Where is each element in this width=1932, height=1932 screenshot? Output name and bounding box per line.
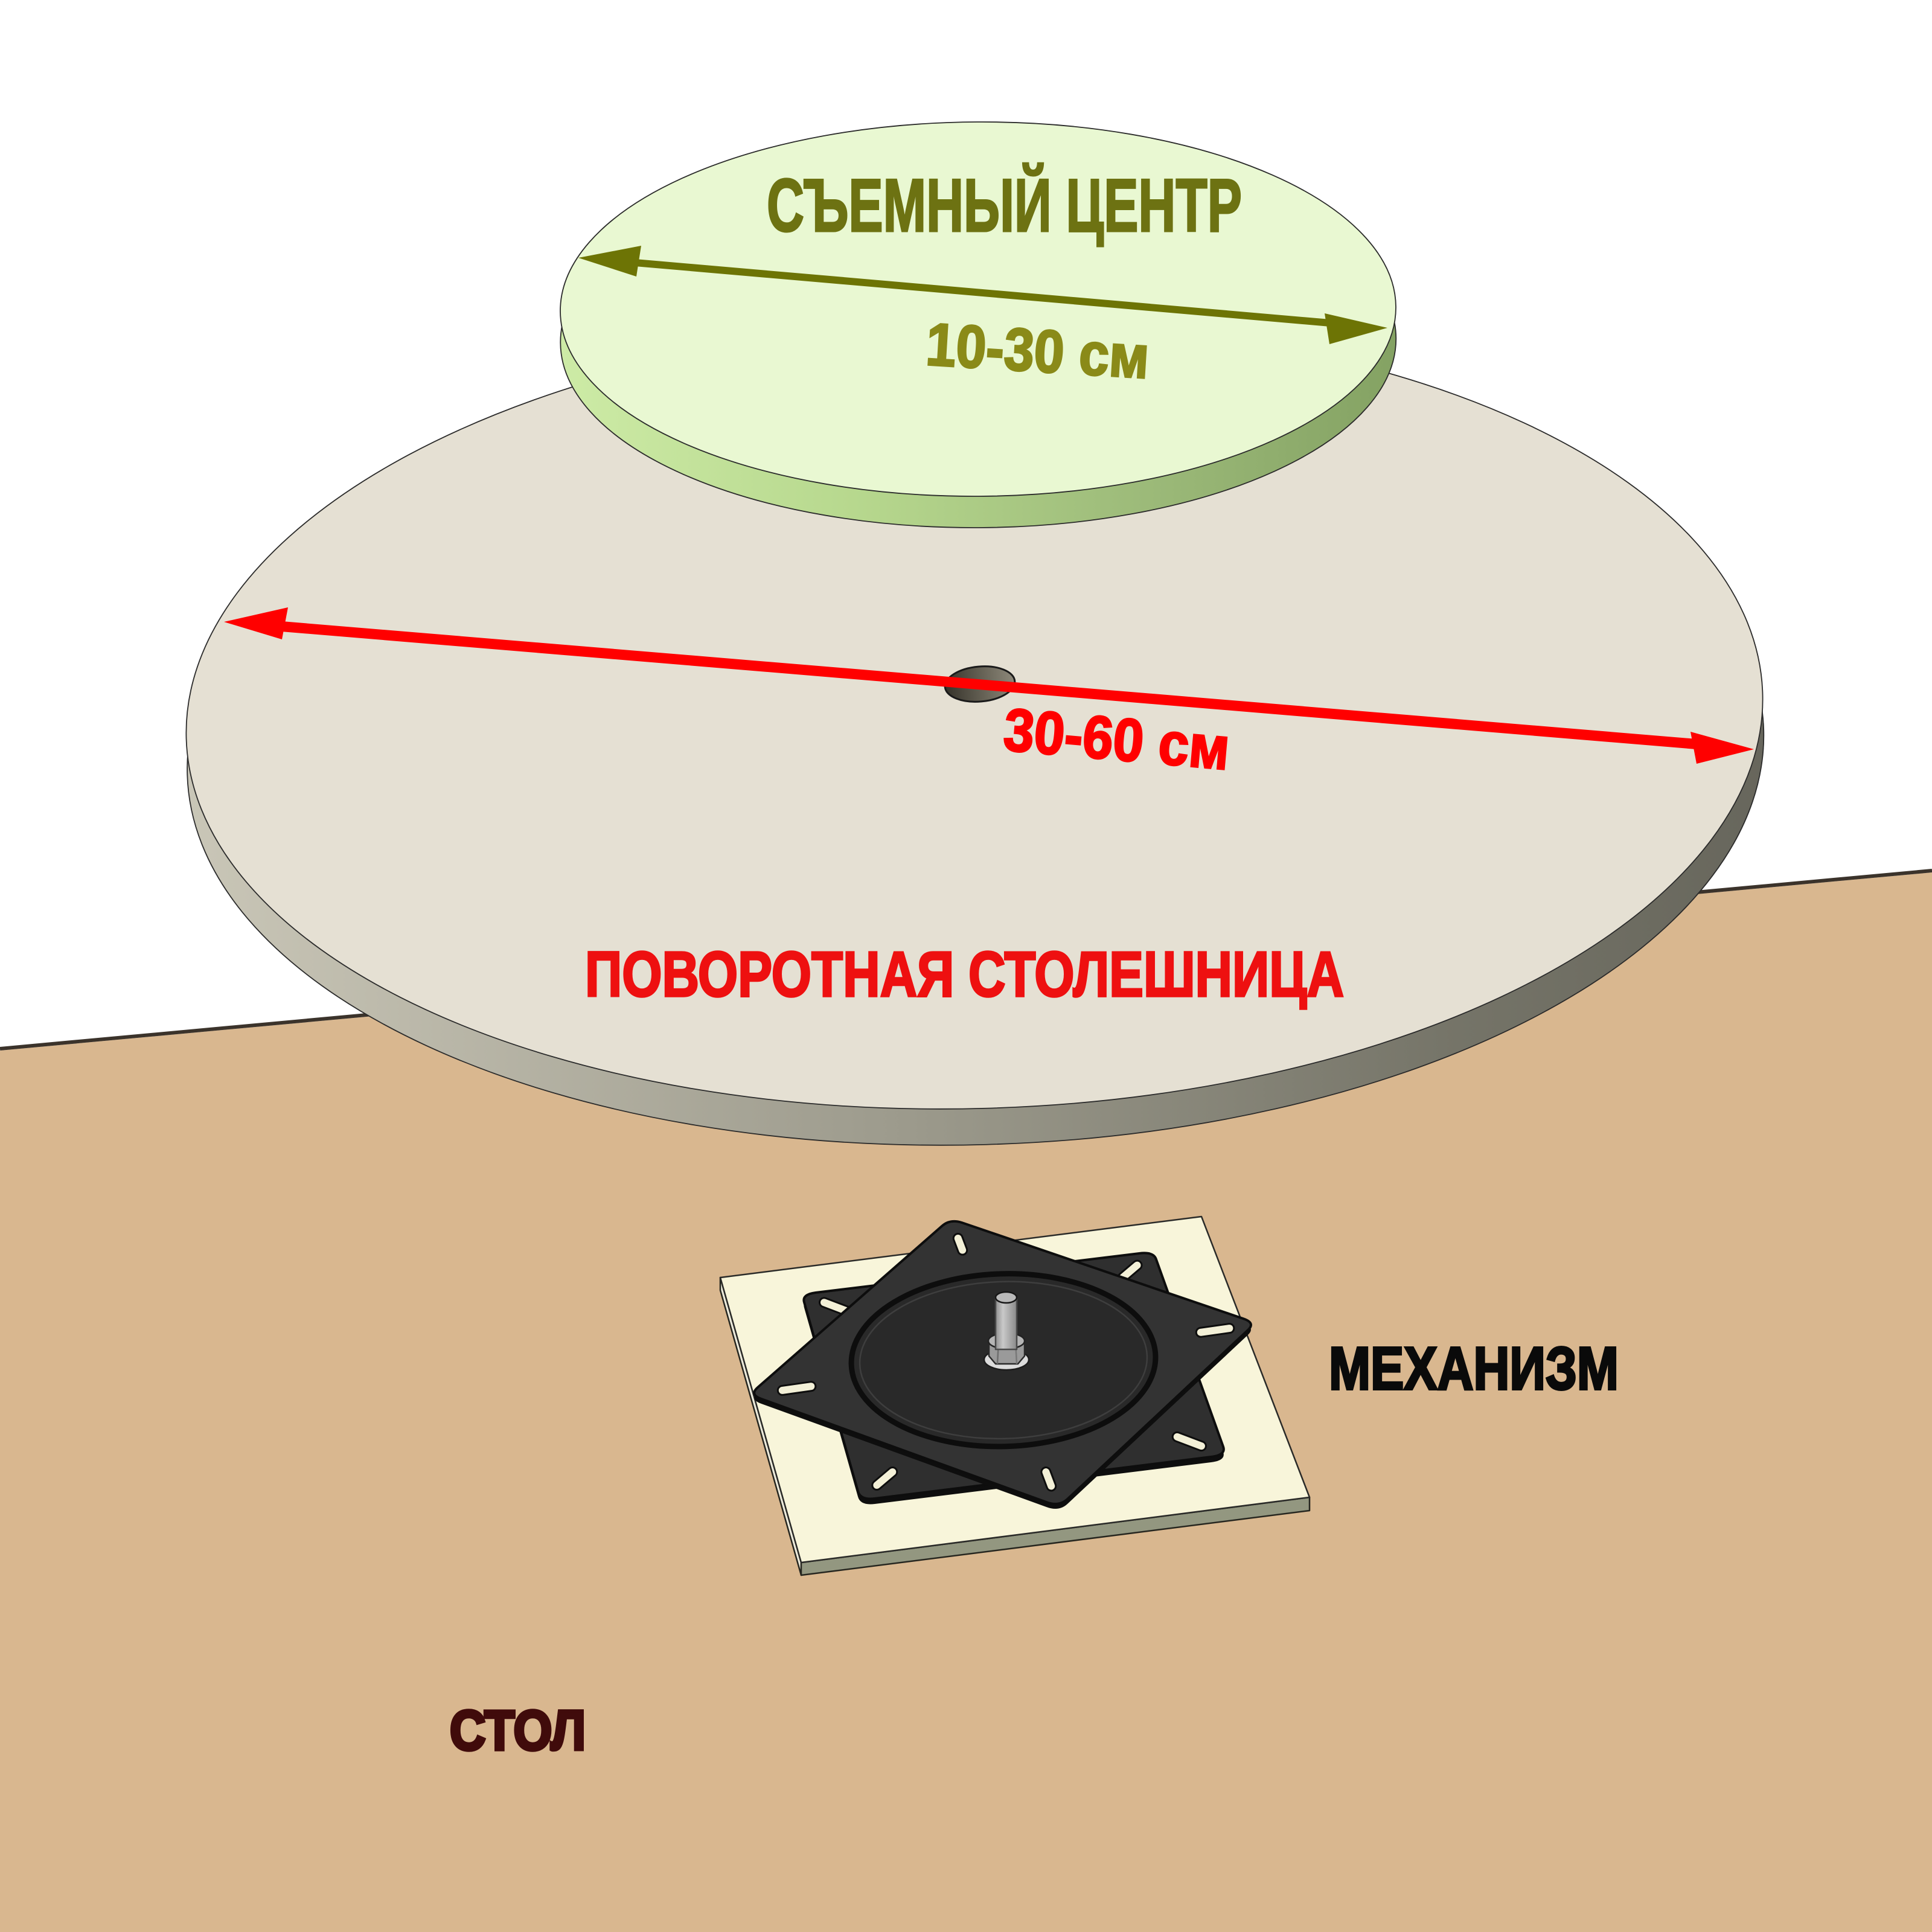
svg-text:СТОЛ: СТОЛ [450,1699,586,1762]
svg-text:ПОВОРОТНАЯ СТОЛЕШНИЦА: ПОВОРОТНАЯ СТОЛЕШНИЦА [585,939,1344,1010]
svg-text:10-30 см: 10-30 см [924,310,1151,391]
svg-text:МЕХАНИЗМ: МЕХАНИЗМ [1329,1335,1619,1403]
svg-text:СЪЕМНЫЙ ЦЕНТР: СЪЕМНЫЙ ЦЕНТР [767,163,1242,248]
